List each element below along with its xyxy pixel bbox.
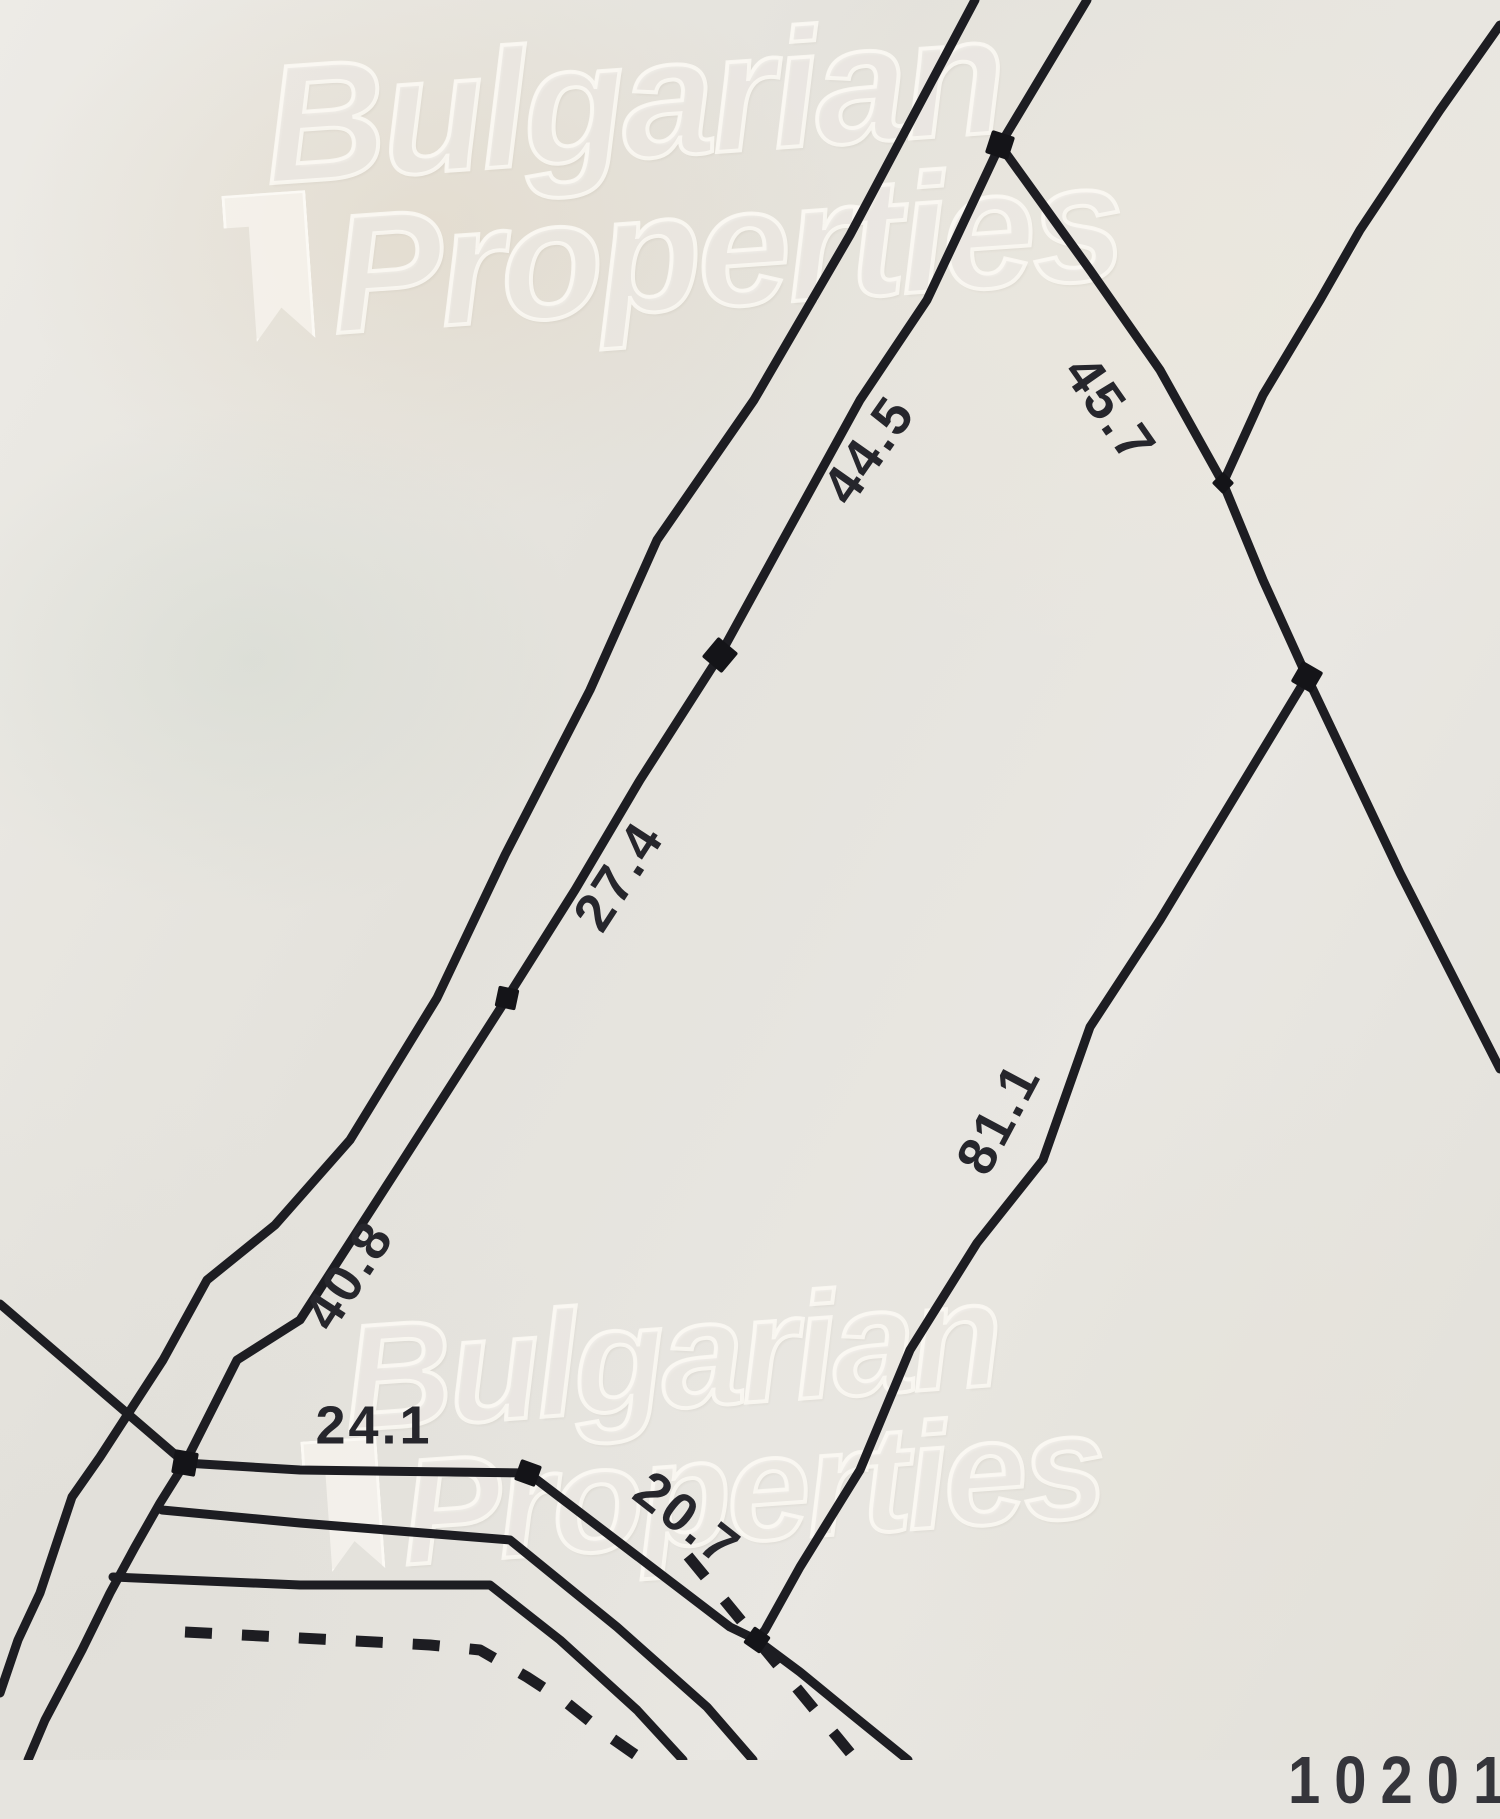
east-boundary-continuation (1307, 677, 1500, 1069)
survey-point-d (171, 1449, 199, 1477)
segment-81-1 (757, 677, 1307, 1640)
cadastral-plot-sketch: 44.545.727.440.881.124.120.7 (0, 0, 1500, 1760)
segment-c-to-b (1223, 483, 1307, 677)
dimension-40-8: 40.8 (292, 1210, 406, 1341)
left-road-boundary (0, 0, 975, 1693)
survey-point-27-40 (495, 986, 520, 1011)
dimension-24-1: 24.1 (315, 1395, 432, 1455)
cadastral-plan-number: 102015 (1288, 1742, 1500, 1819)
dashed-line-east (688, 1556, 856, 1760)
top-right-boundary (1223, 25, 1500, 483)
road-line-3 (113, 1577, 683, 1760)
